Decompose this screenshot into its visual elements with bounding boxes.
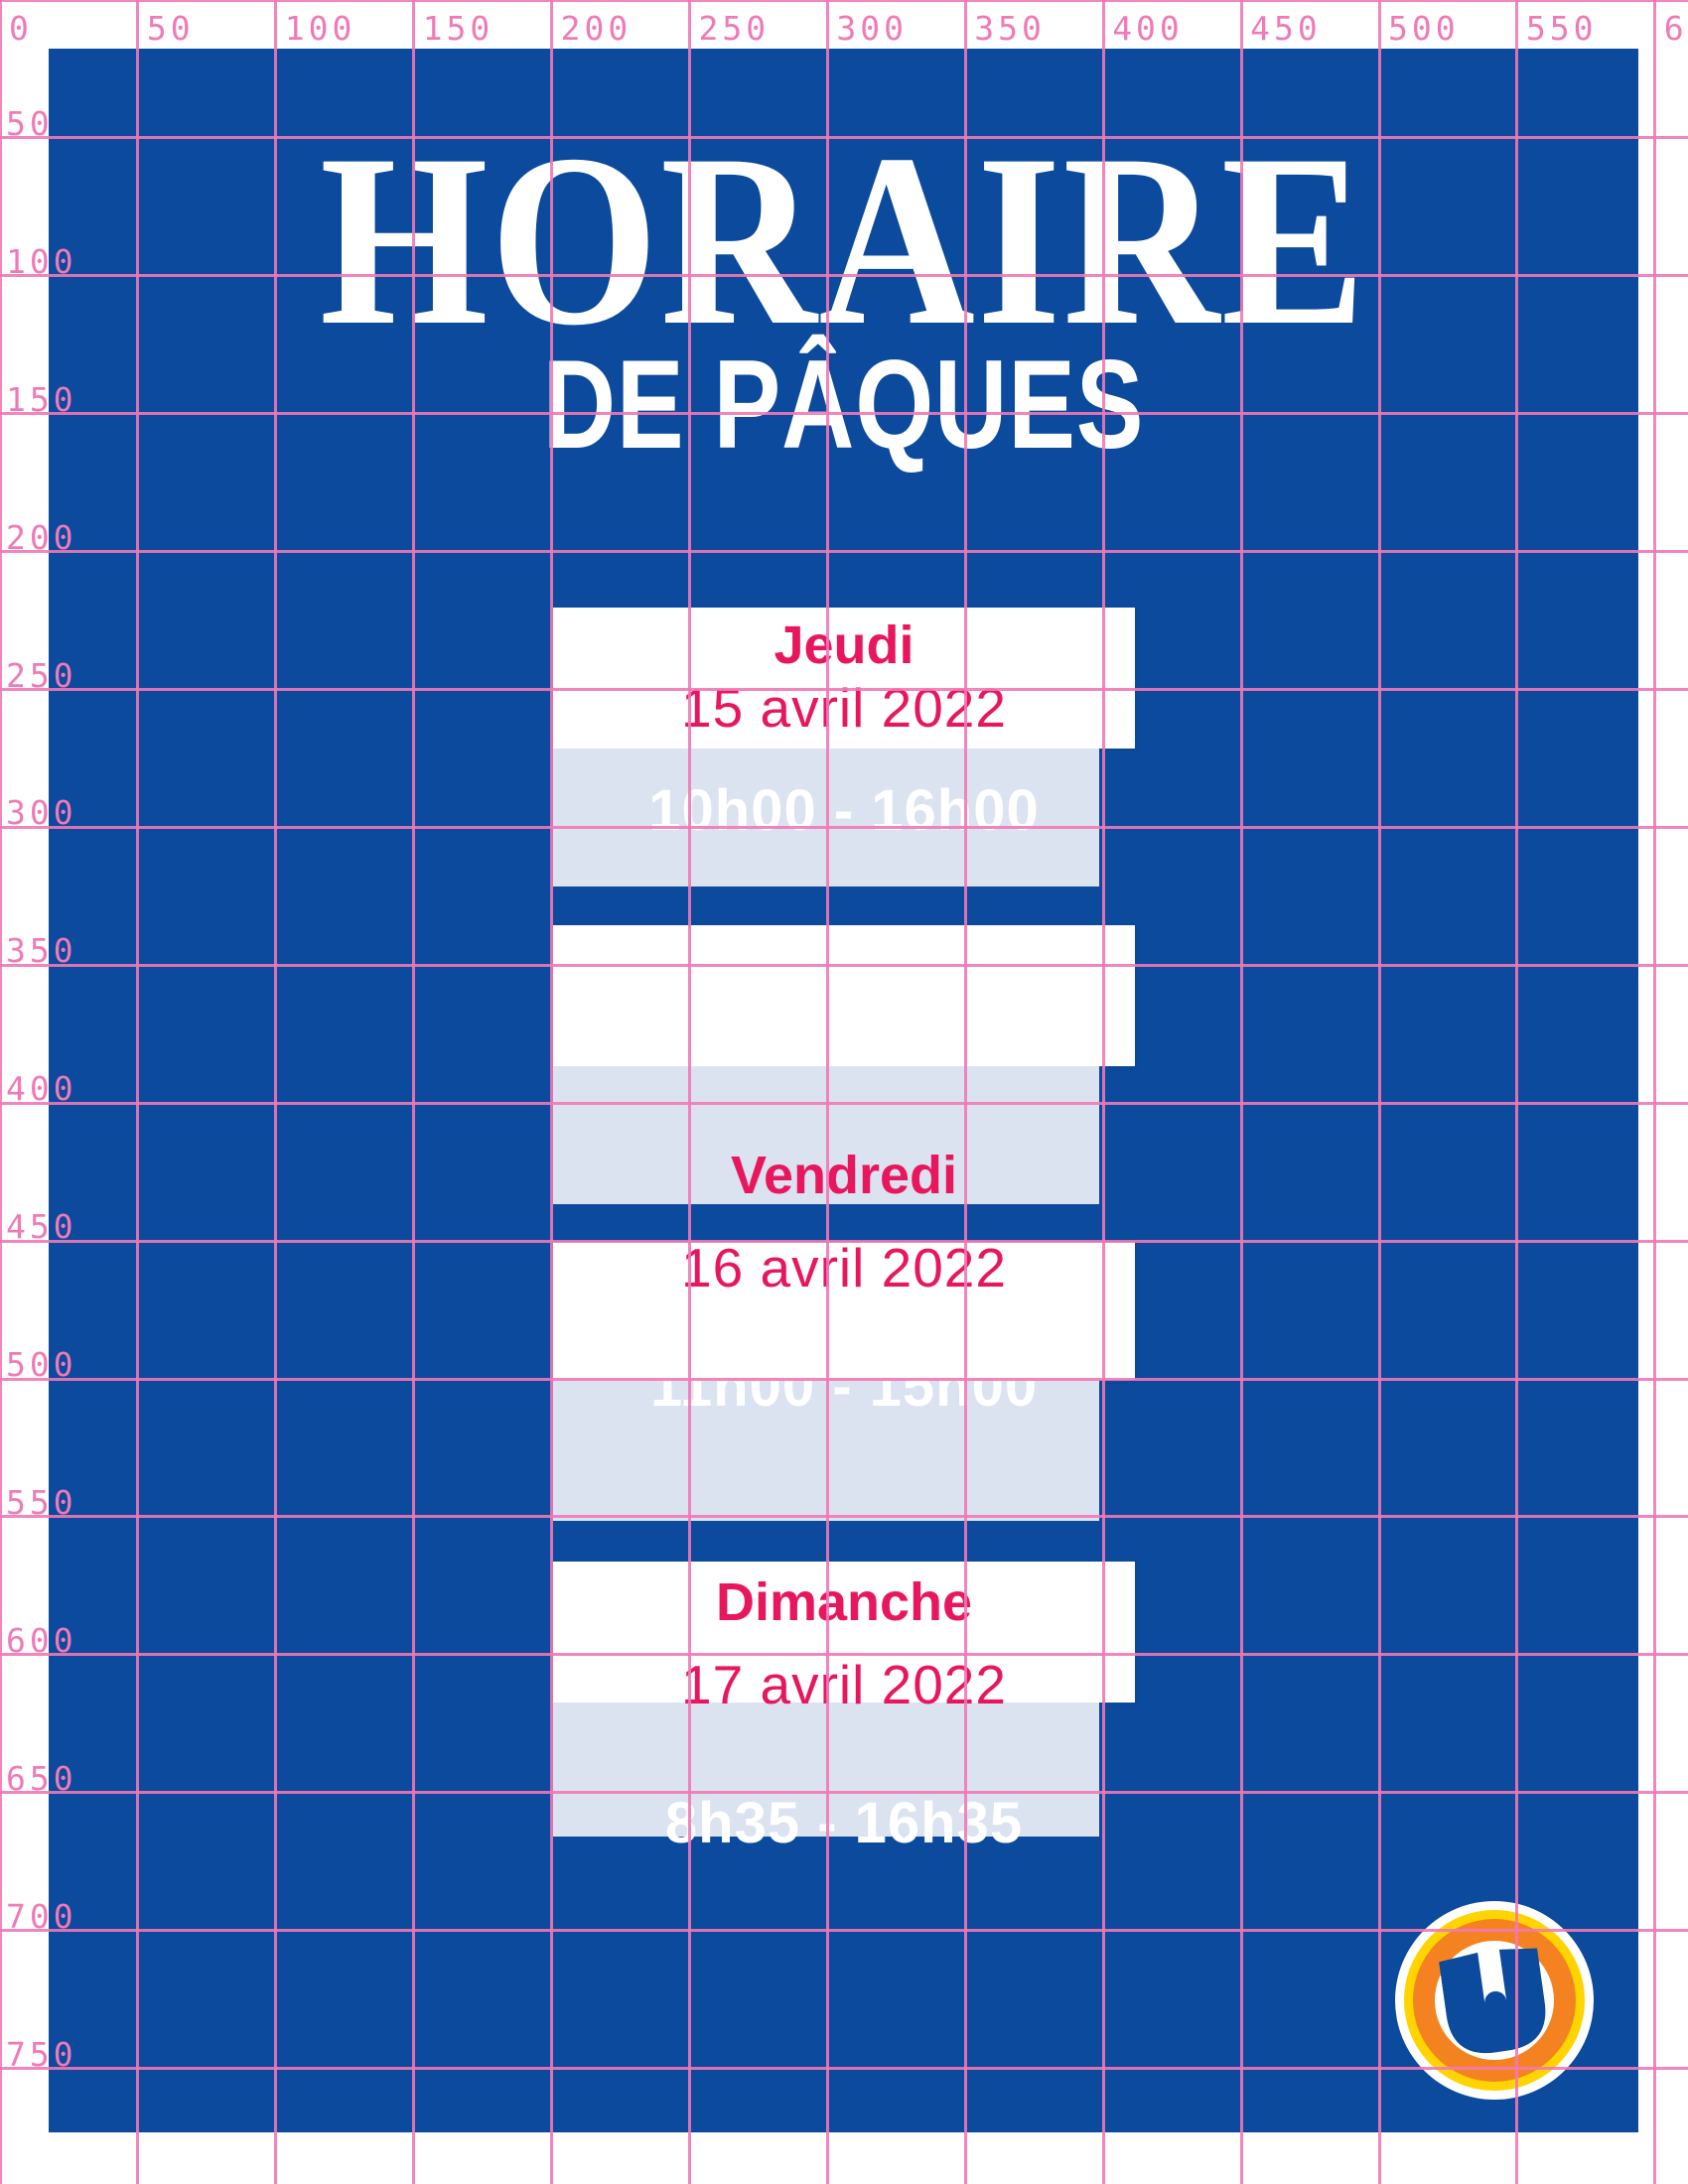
- grid-vline: [0, 0, 2, 2184]
- hours-label: 11h00 - 15h00: [553, 1358, 1135, 1416]
- ruler-label-left: 450: [6, 1210, 77, 1243]
- hours-label: 8h35 - 16h35: [553, 1795, 1135, 1852]
- ruler-label-left: 300: [6, 796, 77, 829]
- ruler-label-left: 200: [6, 521, 77, 554]
- grid-hline: [0, 550, 1688, 553]
- ruler-label-left: 550: [6, 1486, 77, 1519]
- grid-hline: [0, 1102, 1688, 1105]
- ruler-label-left: 600: [6, 1624, 77, 1657]
- ruler-label-top: 250: [699, 12, 771, 45]
- grid-hline: [0, 2067, 1688, 2070]
- grid-hline: [0, 136, 1688, 139]
- grid-vline: [826, 0, 829, 2184]
- u-letter-icon: U: [1438, 1942, 1551, 2060]
- ruler-label-left: 400: [6, 1072, 77, 1105]
- ruler-label-top: 500: [1388, 12, 1460, 45]
- grid-hline: [0, 1378, 1688, 1381]
- grid-vline: [688, 0, 691, 2184]
- grid-vline: [550, 0, 553, 2184]
- grid-hline: [0, 964, 1688, 967]
- schedule-card-vendredi: [553, 925, 1135, 1066]
- ruler-label-top: 50: [147, 12, 195, 45]
- day-label: Jeudi: [553, 618, 1135, 672]
- grid-vline: [1653, 0, 1656, 2184]
- day-label: Dimanche: [553, 1575, 1135, 1629]
- ruler-label-top: 450: [1250, 12, 1322, 45]
- ruler-label-top: 300: [836, 12, 908, 45]
- poster-subtitle-text: DE PÂQUES: [543, 341, 1145, 468]
- grid-vline: [1102, 0, 1105, 2184]
- ruler-label-top: 350: [974, 12, 1046, 45]
- grid-hline: [0, 1515, 1688, 1518]
- ruler-label-top: 550: [1526, 12, 1598, 45]
- grid-vline: [964, 0, 967, 2184]
- grid-vline: [136, 0, 139, 2184]
- grid-hline: [0, 1929, 1688, 1932]
- ruler-label-left: 500: [6, 1348, 77, 1381]
- poster-title: HORAIRE: [49, 117, 1638, 363]
- ruler-label-top: 150: [423, 12, 494, 45]
- ruler-label-top: 100: [285, 12, 356, 45]
- date-label: 16 avril 2022: [553, 1241, 1135, 1296]
- ruler-label-top: 400: [1112, 12, 1184, 45]
- poster-subtitle: DE PÂQUES: [49, 341, 1638, 468]
- date-label: 17 avril 2022: [553, 1658, 1135, 1712]
- ruler-label-left: 650: [6, 1762, 77, 1795]
- grid-vline: [274, 0, 277, 2184]
- day-label: Vendredi: [553, 1149, 1135, 1202]
- grid-vline: [412, 0, 415, 2184]
- grid-vline: [1240, 0, 1243, 2184]
- ruler-label-left: 700: [6, 1900, 77, 1933]
- ruler-label-left: 750: [6, 2038, 77, 2071]
- grid-hline: [0, 1653, 1688, 1656]
- grid-hline: [0, 412, 1688, 415]
- ruler-label-left: 350: [6, 934, 77, 967]
- grid-hline: [0, 274, 1688, 277]
- grid-hline: [0, 688, 1688, 691]
- grid-vline: [1378, 0, 1381, 2184]
- grid-hline: [0, 1791, 1688, 1794]
- ruler-label-top: 600: [1664, 12, 1688, 45]
- grid-hline: [0, 826, 1688, 829]
- ruler-label-left: 250: [6, 659, 77, 692]
- ruler-label-top: 200: [561, 12, 633, 45]
- ruler-label-top: 0: [9, 12, 33, 45]
- ruler-label-left: 50: [6, 107, 54, 140]
- ruler-label-left: 100: [6, 245, 77, 278]
- grid-vline: [1515, 0, 1518, 2184]
- poster-title-text: HORAIRE: [320, 117, 1367, 363]
- grid-hline: [0, 0, 1688, 2]
- grid-hline: [0, 1240, 1688, 1243]
- ruler-label-left: 150: [6, 383, 77, 416]
- hours-label: 10h00 - 16h00: [553, 782, 1135, 840]
